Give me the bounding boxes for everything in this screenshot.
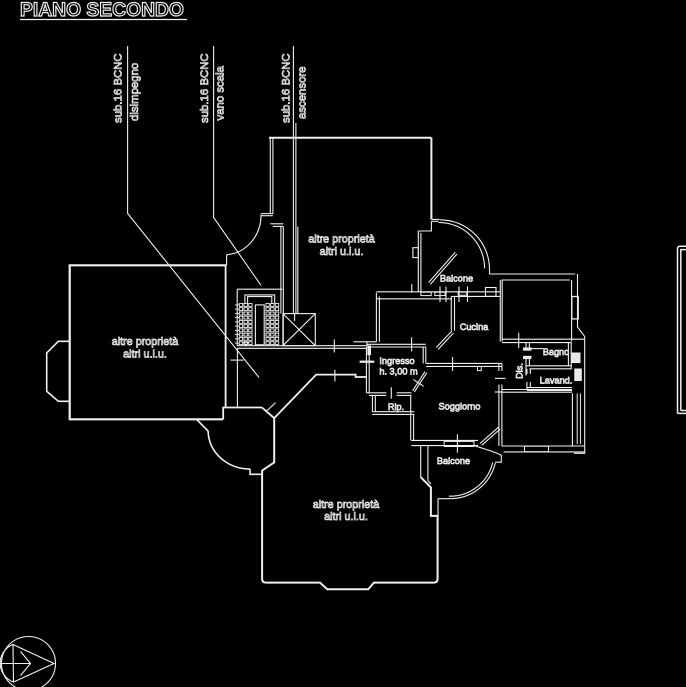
svg-text:Soggiorno: Soggiorno — [439, 402, 481, 412]
svg-text:h. 3,00 m: h. 3,00 m — [379, 366, 418, 376]
svg-text:sub.16 BCNC: sub.16 BCNC — [281, 53, 293, 123]
svg-text:altri u.i.u.: altri u.i.u. — [324, 511, 368, 523]
svg-text:sub.16 BCNC: sub.16 BCNC — [113, 53, 125, 123]
svg-text:ascensore: ascensore — [297, 66, 309, 119]
svg-text:Ingresso: Ingresso — [379, 356, 414, 366]
svg-text:Balcone: Balcone — [437, 456, 470, 466]
svg-text:Balcone: Balcone — [440, 273, 473, 283]
svg-text:altri u.i.u.: altri u.i.u. — [123, 348, 167, 360]
svg-text:disimpegno: disimpegno — [129, 63, 141, 121]
svg-text:PIANO SECONDO: PIANO SECONDO — [20, 0, 184, 21]
svg-text:Lavand.: Lavand. — [540, 376, 573, 386]
svg-text:altre proprietà: altre proprietà — [112, 336, 179, 348]
svg-text:Bagno: Bagno — [543, 347, 570, 357]
svg-text:altre proprietà: altre proprietà — [308, 233, 375, 245]
svg-text:sub.16 BCNC: sub.16 BCNC — [199, 53, 211, 123]
svg-text:vano scala: vano scala — [215, 65, 227, 120]
svg-text:altre proprietà: altre proprietà — [313, 499, 380, 511]
svg-text:altri u.i.u.: altri u.i.u. — [320, 246, 364, 258]
svg-text:Dis.: Dis. — [515, 363, 525, 379]
svg-text:Rip.: Rip. — [388, 402, 404, 412]
svg-text:Cucina: Cucina — [460, 322, 489, 332]
